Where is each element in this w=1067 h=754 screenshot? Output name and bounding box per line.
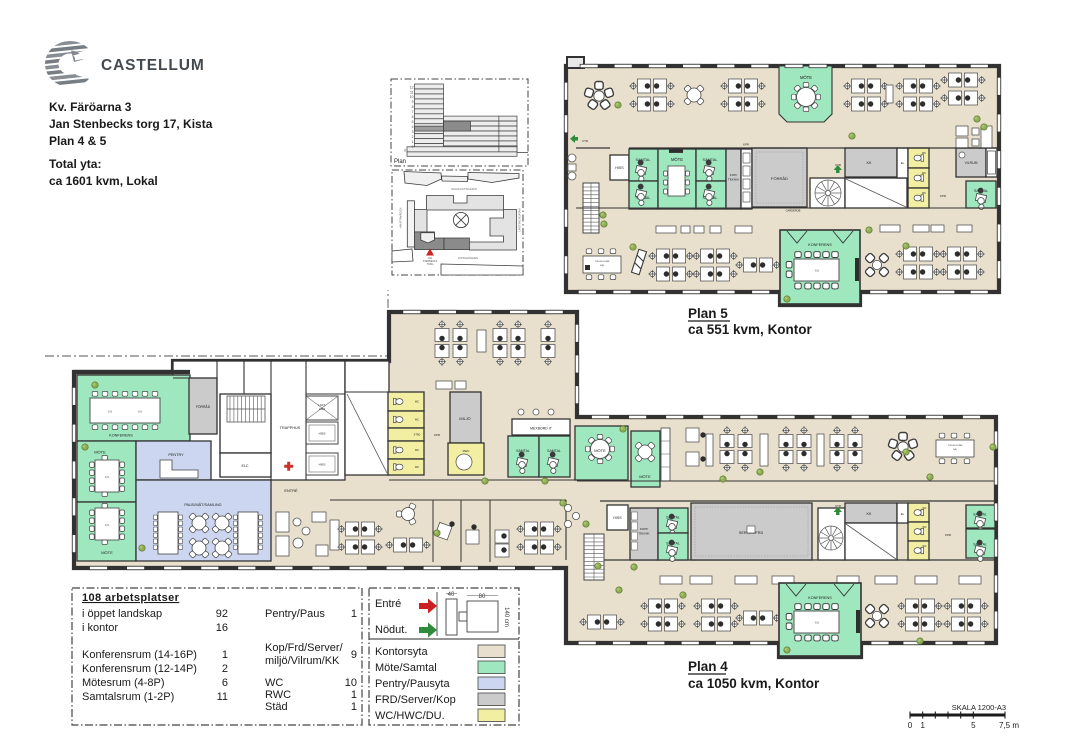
svg-text:Pentry/Pausyta: Pentry/Pausyta — [375, 678, 450, 690]
svg-text:STÄD: STÄD — [414, 434, 421, 437]
svg-text:WC: WC — [922, 172, 926, 175]
svg-text:MÖTE: MÖTE — [94, 450, 106, 455]
svg-text:1: 1 — [351, 701, 357, 713]
svg-text:WC: WC — [265, 677, 283, 689]
svg-text:1: 1 — [920, 721, 925, 730]
svg-text:6(8): 6(8) — [600, 265, 604, 267]
svg-text:WC/HWC/DU.: WC/HWC/DU. — [375, 710, 445, 722]
svg-text:HISS: HISS — [613, 516, 622, 520]
svg-text:0: 0 — [908, 721, 913, 730]
svg-text:WC: WC — [415, 466, 419, 469]
svg-text:FÖRRÅD: FÖRRÅD — [196, 404, 211, 409]
svg-text:6(8): 6(8) — [105, 523, 110, 527]
svg-text:HISS: HISS — [319, 463, 326, 467]
svg-text:9: 9 — [351, 649, 357, 661]
svg-text:WC: WC — [415, 401, 419, 404]
svg-text:SKALHOLTSGATAN: SKALHOLTSGATAN — [451, 187, 477, 191]
svg-text:92: 92 — [216, 608, 228, 620]
svg-text:Konferensrum (12-14P): Konferensrum (12-14P) — [82, 663, 197, 675]
svg-text:WC: WC — [415, 419, 419, 422]
svg-text:KK: KK — [866, 161, 872, 165]
svg-text:KPR: KPR — [945, 533, 951, 537]
svg-text:TOUCH-DOWN: TOUCH-DOWN — [948, 445, 963, 447]
svg-text:KPR: KPR — [434, 433, 440, 437]
svg-text:108 arbetsplatser: 108 arbetsplatser — [82, 592, 180, 604]
svg-text:LAGTINGSGATAN: LAGTINGSGATAN — [518, 208, 522, 231]
svg-text:Entré: Entré — [375, 598, 401, 610]
svg-text:7: 7 — [412, 110, 414, 114]
svg-text:PAUS/MÅT/SAMLING: PAUS/MÅT/SAMLING — [184, 502, 221, 507]
svg-text:TRAPPHUS: TRAPPHUS — [280, 426, 301, 430]
svg-text:1: 1 — [351, 608, 357, 620]
svg-text:KONFERENS: KONFERENS — [109, 434, 133, 438]
svg-text:KPR: KPR — [940, 194, 946, 198]
svg-text:FÖRRÅD: FÖRRÅD — [771, 176, 788, 181]
svg-text:16: 16 — [216, 622, 228, 634]
svg-text:KONFERENS: KONFERENS — [808, 596, 832, 600]
svg-text:MEXBORD IT: MEXBORD IT — [530, 427, 553, 431]
svg-text:EL: EL — [901, 161, 905, 165]
svg-text:miljö/Vilrum/KK: miljö/Vilrum/KK — [265, 655, 340, 667]
svg-text:Kv. Färöarna 3: Kv. Färöarna 3 — [49, 100, 132, 114]
svg-text:WC: WC — [415, 449, 419, 452]
svg-text:MÖTE: MÖTE — [594, 448, 606, 453]
svg-text:RWC: RWC — [463, 449, 470, 453]
svg-text:KONFERENS: KONFERENS — [808, 243, 832, 247]
svg-text:6(8): 6(8) — [815, 269, 820, 273]
svg-text:EL: EL — [901, 512, 905, 516]
svg-text:Plan 4 & 5: Plan 4 & 5 — [49, 134, 107, 148]
svg-text:MILJÖ: MILJÖ — [459, 417, 470, 421]
svg-text:Plan 5: Plan 5 — [688, 306, 728, 321]
svg-text:6(8): 6(8) — [815, 621, 820, 625]
svg-text:KOPI/: KOPI/ — [640, 527, 648, 531]
svg-text:WC: WC — [922, 152, 926, 155]
svg-text:5: 5 — [971, 721, 976, 730]
svg-text:2: 2 — [222, 663, 228, 675]
svg-text:6(8): 6(8) — [105, 475, 110, 479]
svg-text:KPR: KPR — [743, 143, 749, 147]
svg-text:TEKNIK: TEKNIK — [638, 532, 650, 536]
svg-text:6(8): 6(8) — [108, 410, 113, 414]
svg-text:VILRUM: VILRUM — [965, 161, 978, 165]
svg-text:1: 1 — [222, 649, 228, 661]
svg-text:TORG: TORG — [427, 263, 434, 266]
svg-text:Möte/Samtal: Möte/Samtal — [375, 662, 437, 674]
svg-text:Mötesrum (4-8P): Mötesrum (4-8P) — [82, 677, 165, 689]
svg-text:140 cm: 140 cm — [503, 607, 509, 627]
svg-text:6(8): 6(8) — [953, 449, 957, 451]
svg-text:1: 1 — [351, 689, 357, 701]
svg-text:ca 551 kvm, Kontor: ca 551 kvm, Kontor — [688, 322, 813, 337]
svg-text:0: 0 — [404, 149, 406, 153]
svg-text:Total yta:: Total yta: — [49, 157, 101, 171]
svg-text:ELC: ELC — [242, 464, 249, 468]
svg-text:LAST-: LAST- — [318, 403, 326, 407]
svg-text:8: 8 — [412, 105, 414, 109]
svg-text:HANSTAVÄGEN: HANSTAVÄGEN — [399, 208, 403, 229]
svg-text:UTR: UTR — [582, 139, 588, 143]
svg-text:HISS: HISS — [615, 166, 624, 170]
svg-text:GARDEROB: GARDEROB — [786, 209, 801, 213]
svg-text:HISS: HISS — [319, 432, 326, 436]
svg-text:TOUCH-DOWN: TOUCH-DOWN — [595, 261, 610, 263]
svg-text:Nödut.: Nödut. — [375, 624, 407, 636]
svg-text:WC: WC — [923, 507, 927, 510]
svg-text:SKALA 1200-A3: SKALA 1200-A3 — [952, 703, 1006, 712]
svg-text:i kontor: i kontor — [82, 622, 118, 634]
svg-text:MÖTE: MÖTE — [101, 550, 113, 555]
svg-text:HISS: HISS — [319, 407, 325, 411]
svg-text:WC: WC — [923, 526, 927, 529]
svg-text:6(8): 6(8) — [138, 410, 143, 414]
svg-text:40: 40 — [448, 592, 455, 598]
svg-text:TEKNIK: TEKNIK — [728, 178, 740, 182]
svg-text:i öppet landskap: i öppet landskap — [82, 608, 162, 620]
svg-text:Plan 4: Plan 4 — [688, 659, 728, 674]
svg-text:KOP/: KOP/ — [730, 173, 738, 177]
svg-text:RWC: RWC — [265, 689, 291, 701]
svg-text:WC: WC — [923, 545, 927, 548]
svg-text:Jan Stenbecks torg 17, Kista: Jan Stenbecks torg 17, Kista — [49, 117, 213, 131]
svg-text:9: 9 — [412, 100, 414, 104]
svg-text:6: 6 — [412, 115, 414, 119]
svg-text:MÖTE: MÖTE — [639, 474, 651, 479]
svg-text:11: 11 — [410, 90, 414, 94]
svg-text:KK: KK — [867, 512, 872, 516]
svg-text:Kontorsyta: Kontorsyta — [375, 646, 428, 658]
svg-text:3: 3 — [412, 130, 414, 134]
svg-text:Konferensrum (14-16P): Konferensrum (14-16P) — [82, 649, 197, 661]
svg-text:1: 1 — [412, 140, 414, 144]
svg-text:Plan: Plan — [394, 159, 406, 165]
svg-text:10: 10 — [345, 677, 357, 689]
svg-text:PENTRY: PENTRY — [168, 453, 184, 457]
svg-text:Pentry/Paus: Pentry/Paus — [265, 608, 325, 620]
svg-text:Städ: Städ — [265, 701, 288, 713]
svg-text:Samtalsrum (1-2P): Samtalsrum (1-2P) — [82, 691, 174, 703]
svg-text:WC: WC — [922, 192, 926, 195]
svg-text:4: 4 — [412, 125, 414, 129]
svg-text:Kop/Frd/Server/: Kop/Frd/Server/ — [265, 642, 344, 654]
svg-text:10: 10 — [410, 95, 414, 99]
svg-text:ca 1050 kvm, Kontor: ca 1050 kvm, Kontor — [688, 676, 820, 691]
svg-text:0: 0 — [412, 145, 414, 149]
svg-text:MÖTE: MÖTE — [671, 157, 683, 162]
svg-text:80: 80 — [479, 594, 486, 600]
svg-text:ENTRÉ: ENTRÉ — [284, 488, 298, 493]
svg-text:12: 12 — [410, 85, 414, 89]
svg-text:7,5 m: 7,5 m — [999, 721, 1019, 730]
svg-text:CASTELLUM: CASTELLUM — [101, 57, 205, 74]
svg-text:KISTAGÅNGEN: KISTAGÅNGEN — [458, 255, 478, 260]
svg-text:11: 11 — [217, 691, 228, 703]
svg-text:6: 6 — [222, 677, 228, 689]
svg-text:MÖTE: MÖTE — [800, 75, 812, 80]
svg-text:ca 1601 kvm, Lokal: ca 1601 kvm, Lokal — [49, 174, 158, 188]
svg-text:FRD/Server/Kop: FRD/Server/Kop — [375, 694, 456, 706]
svg-text:2: 2 — [412, 135, 414, 139]
svg-text:5: 5 — [412, 120, 414, 124]
